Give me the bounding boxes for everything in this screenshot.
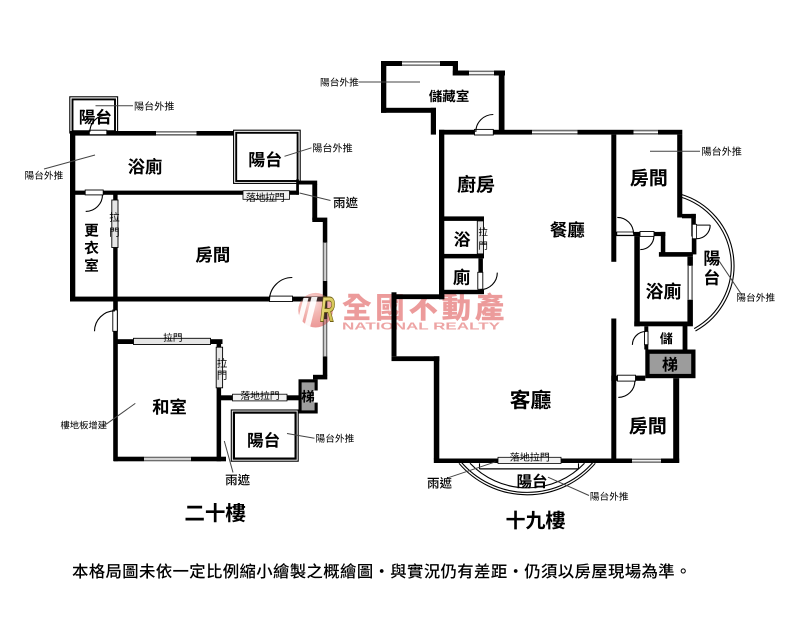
svg-text:NATIONAL REALTY: NATIONAL REALTY <box>342 321 500 333</box>
svg-text:R: R <box>320 291 335 330</box>
